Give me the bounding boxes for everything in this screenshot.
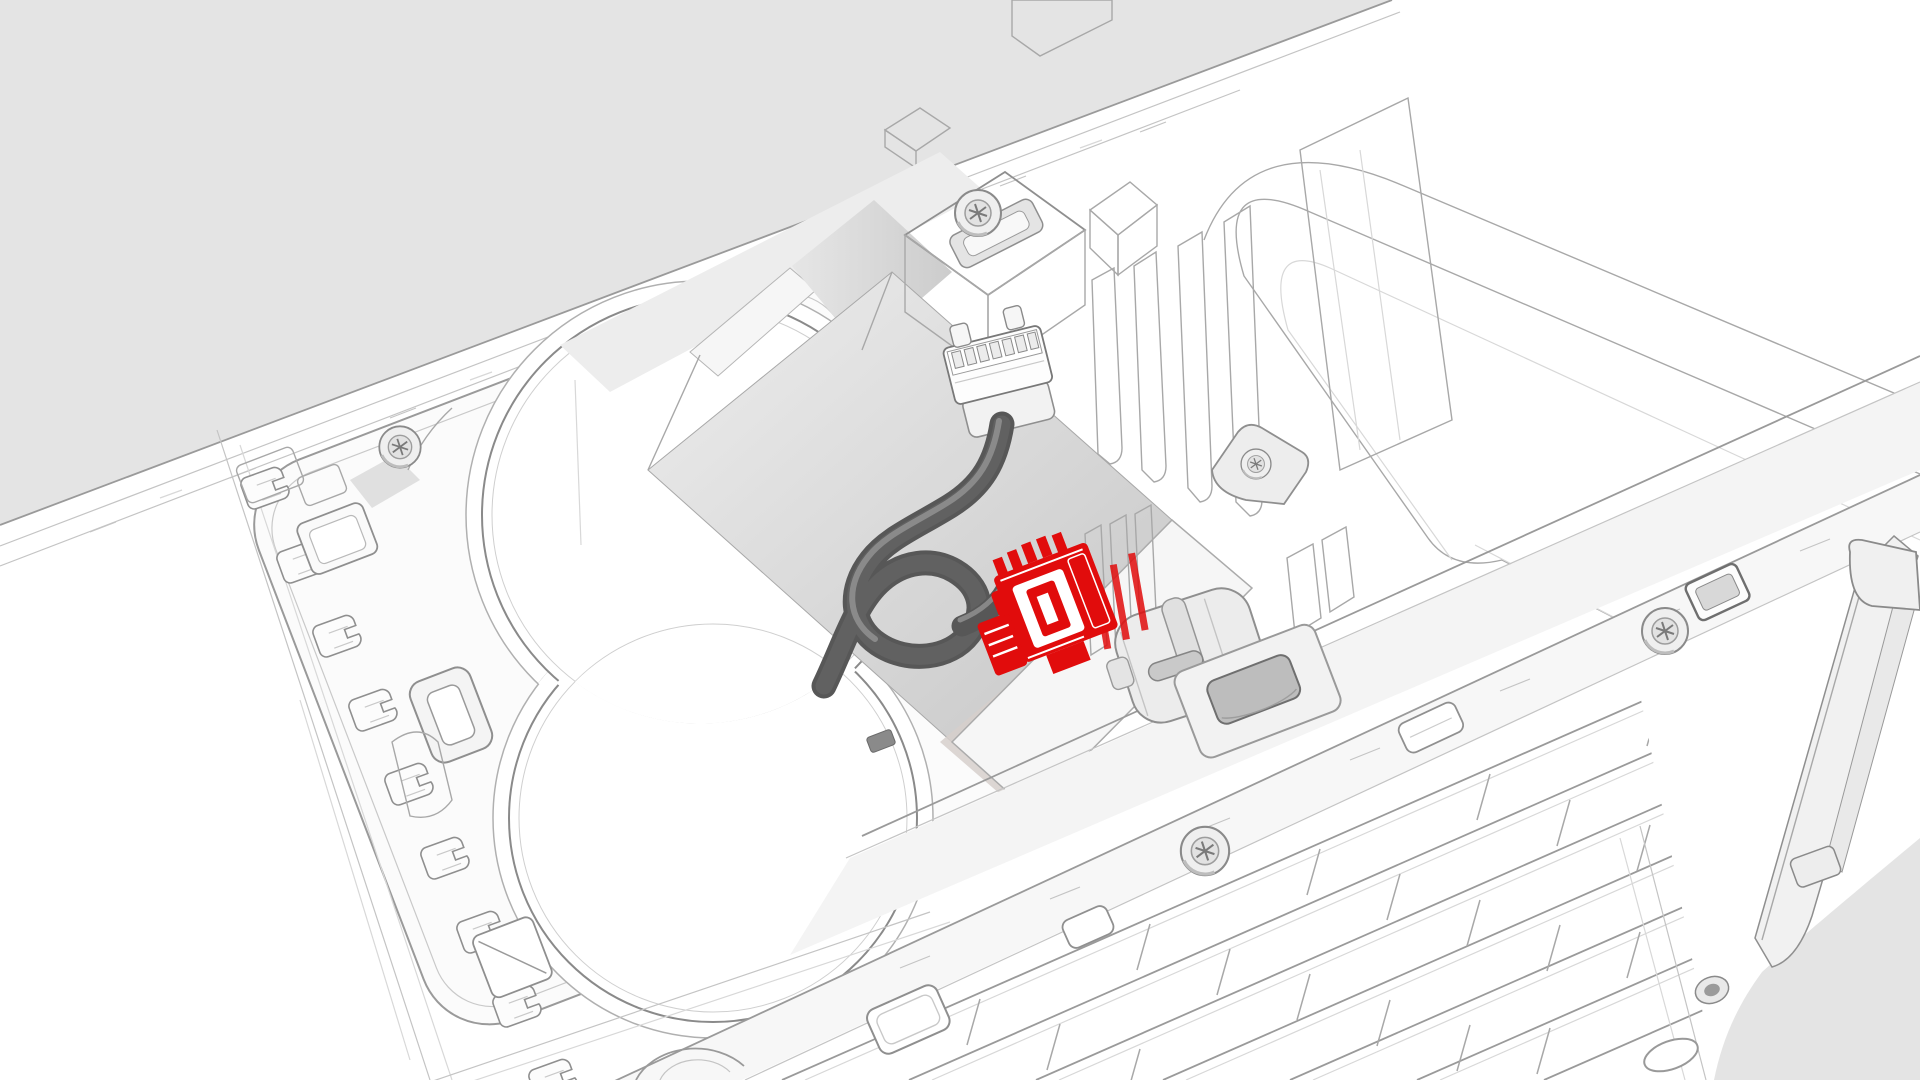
service-illustration-canvas (0, 0, 1920, 1080)
screw-fastener-clamp (1241, 449, 1271, 479)
screw-fastener-top (955, 190, 1001, 236)
console-illustration (0, 0, 1920, 1080)
screw-fastener-rail-left (1181, 827, 1229, 875)
screw-fastener-rail-right (1642, 608, 1688, 654)
screw-fastener-tray (379, 426, 420, 467)
